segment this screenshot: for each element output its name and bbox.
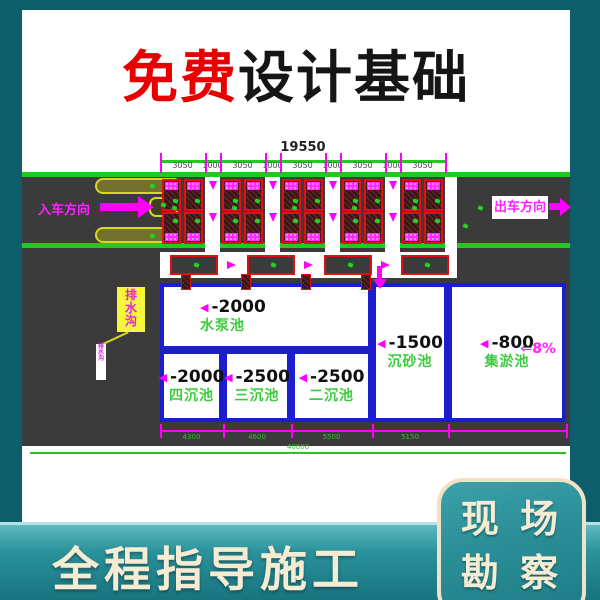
enter-direction-label: 入车方向 [38,199,90,218]
title-highlight: 免费 [122,46,238,111]
dim-tick [372,424,374,438]
exit-arrow-icon [549,203,561,210]
pool-depth: ◀-2000 [159,368,225,387]
wash-stall [184,179,203,211]
pool-name: 水泵池 [200,318,245,335]
wash-stall [244,212,263,244]
pool-name: 沉砂池 [388,354,433,371]
dim-tick [448,424,450,438]
pool-dim-label: 4600 [223,433,291,441]
stall-pad [165,233,178,241]
plant-mark [172,218,178,223]
plant-mark [352,198,358,203]
plant-mark [412,218,418,223]
badge-line-1: 现 场 [461,494,562,544]
pool-two-settling: ◀-2500 二沉池 [291,350,372,422]
enter-arrow-icon [100,203,138,211]
lane-arrow-icon [269,181,277,190]
pool-depth: ◀-1500 [377,334,443,353]
stall-pad [225,233,238,241]
wash-stall [424,212,443,244]
plant-mark [424,262,430,267]
stall-pad [405,233,418,241]
wash-stall [244,179,263,211]
flow-arrow [377,266,382,279]
dim-tick [325,153,327,173]
pool-pump: ◀-2000 水泵池 [160,283,372,350]
dim-tick [220,153,222,173]
pool-dim-label: 5500 [291,433,372,441]
wash-stall [222,212,241,244]
stall-pad [247,233,260,241]
drain-feed-block [241,274,251,290]
exit-arrow-head-icon [560,198,571,216]
corridor-cell [401,255,449,275]
plant-mark [374,218,380,223]
wash-stall [364,179,383,211]
lane-arrow-icon [389,213,397,222]
lane-arrow-icon [209,181,217,190]
pool-dim-label: 5150 [372,433,448,441]
plant-mark [434,198,440,203]
lane-arrow-icon [329,213,337,222]
enter-arrow-head-icon [138,196,154,218]
dim-tick [160,153,162,173]
dim-tick [223,424,225,438]
dim-tick [385,153,387,173]
stall-pad [427,233,440,241]
plant-mark [412,198,418,203]
site-survey-badge: 现 场 勘 察 [437,478,586,600]
advert-image: 免费设计基础 19550 入车方向 出车方向 排水沟 排水沟 ◀-2000 水泵… [0,0,600,600]
lane-arrow-icon [269,213,277,222]
total-dimension-label: 19550 [160,140,446,155]
plant-mark [314,198,320,203]
plant-mark [194,198,200,203]
pool-name: 二沉池 [309,388,354,405]
plant-mark [254,218,260,223]
badge-line-2: 勘 察 [461,548,562,598]
corridor-cell [247,255,295,275]
dim-tick [280,153,282,173]
plant-mark [232,198,238,203]
drain-strip-char: 沟 [96,356,106,362]
stall-pad [405,182,418,190]
wash-stall [304,179,323,211]
dim-tick [291,424,293,438]
plant-mark [292,198,298,203]
flow-arrow-icon [227,261,236,269]
dim-tick [340,153,342,173]
stall-pad [285,233,298,241]
stall-pad [187,182,200,190]
stall-pad [187,233,200,241]
plant-mark [254,198,260,203]
pool-three-settling: ◀-2500 三沉池 [223,350,291,422]
corridor-cell [324,255,372,275]
road-edge-line-top [22,172,570,177]
drain-label-char: 沟 [117,315,145,328]
stall-pad [345,182,358,190]
stall-pad [307,233,320,241]
pool-four-settling: ◀-2000 四沉池 [160,350,223,422]
pool-depth: ◀-2500 [224,368,290,387]
wash-stall [342,212,361,244]
total-length-line [30,452,566,454]
drain-feed-block [301,274,311,290]
dim-tick [205,153,207,173]
depth-marker-icon: ◀ [377,334,385,353]
stall-pad [345,233,358,241]
wash-stall [402,212,421,244]
drain-feed-block [181,274,191,290]
dim-tick [400,153,402,173]
plant-mark [352,218,358,223]
plant-mark [292,218,298,223]
plant-mark [193,262,199,267]
exit-direction-label: 出车方向 [492,196,548,219]
plant-mark [172,198,178,203]
lane-arrow-icon [329,181,337,190]
stall-pad [367,182,380,190]
plant-mark [347,262,353,267]
pool-depth: ◀-2000 [200,298,266,317]
drain-callout-label: 排水沟 [117,287,145,332]
plant-mark [434,218,440,223]
depth-marker-icon: ◀ [299,368,307,387]
flow-arrow-icon [304,261,313,269]
stall-pad [285,182,298,190]
pool-silt-collect: ◀-800 集淤池 ⇐8% [448,283,566,422]
plant-mark [374,198,380,203]
stall-pad [225,182,238,190]
plant-mark [194,218,200,223]
depth-marker-icon: ◀ [159,368,167,387]
pool-dim-label: 4300 [160,433,223,441]
slope-label: ⇐8% [521,341,557,357]
plant-mark [314,218,320,223]
plant-mark [270,262,276,267]
depth-marker-icon: ◀ [224,368,232,387]
bottom-dimension-line [160,430,566,432]
title-rest: 设计基础 [238,46,470,111]
plant-mark [232,218,238,223]
footer-slogan: 全程指导施工 [52,531,364,600]
drain-feed-block [361,274,371,290]
lane-arrow-icon [389,181,397,190]
page-title: 免费设计基础 [22,48,570,110]
drain-channel: 排水沟 [96,344,106,380]
flow-arrow-icon [381,261,390,269]
lane-arrow-icon [209,213,217,222]
pool-name: 三沉池 [235,388,280,405]
dim-tick [160,424,162,438]
wash-stall [184,212,203,244]
depth-marker-icon: ◀ [200,298,208,317]
corridor-cell [170,255,218,275]
wash-stall [364,212,383,244]
depth-marker-icon: ◀ [480,334,488,353]
pool-name: 四沉池 [169,388,214,405]
wash-stall [304,212,323,244]
dim-tick [566,424,568,438]
wash-stall [162,212,181,244]
total-length-label: 40000 [266,443,330,451]
stall-pad [367,233,380,241]
flow-arrow-head-icon [373,279,387,289]
dim-tick [445,153,447,173]
stall-pad [247,182,260,190]
wash-stall [282,212,301,244]
pool-depth: ◀-2500 [299,368,365,387]
dim-tick [265,153,267,173]
stall-pad [427,182,440,190]
wash-stall [424,179,443,211]
pool-sand-settling: ◀-1500 沉砂池 [372,283,448,422]
stall-pad [307,182,320,190]
stall-pad [165,182,178,190]
